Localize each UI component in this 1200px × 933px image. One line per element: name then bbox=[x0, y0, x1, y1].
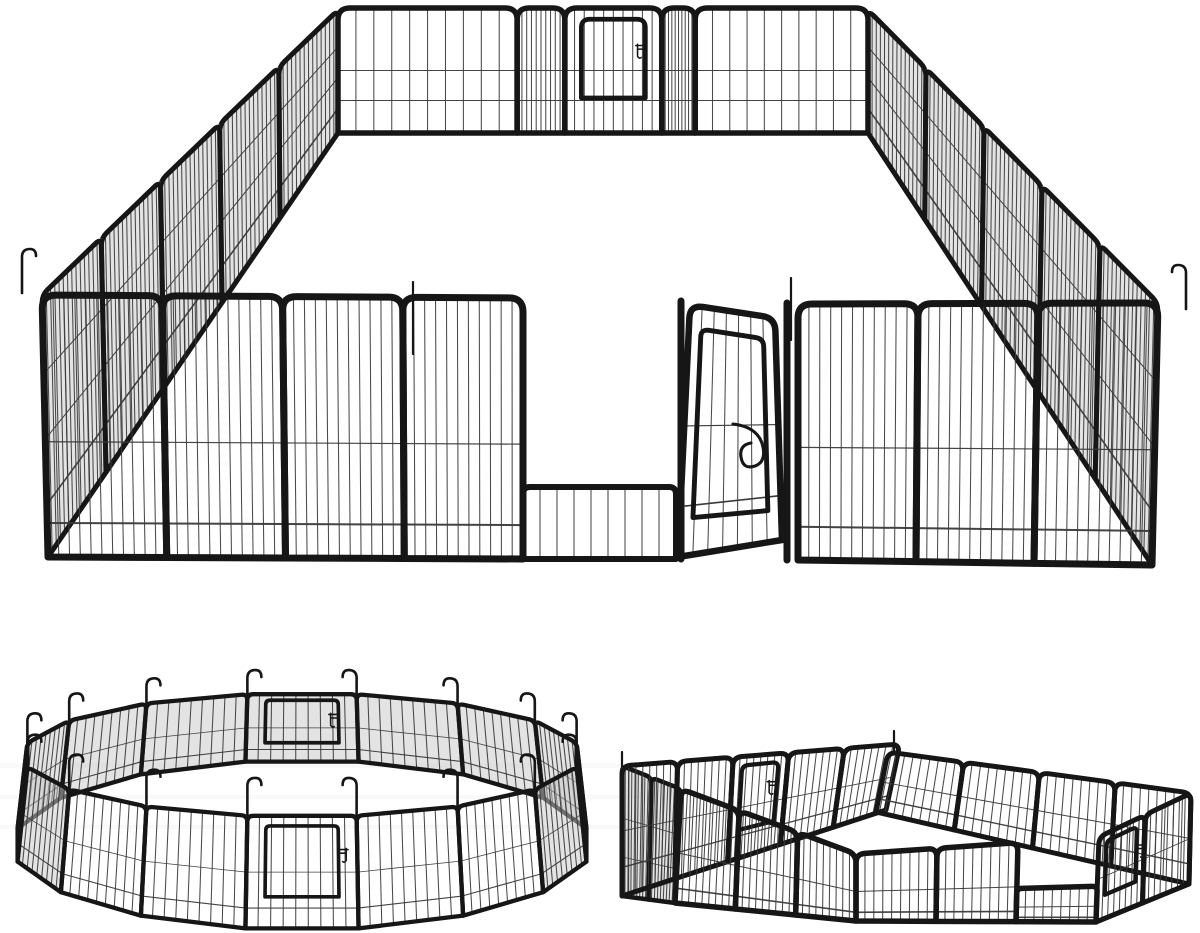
zigzag-pen-figure bbox=[622, 731, 1191, 922]
fence-panel bbox=[357, 694, 463, 774]
fence-panel bbox=[42, 238, 106, 557]
fence-panel bbox=[517, 8, 565, 133]
fence-panel bbox=[954, 763, 1038, 848]
product-photo-stage bbox=[0, 0, 1200, 933]
fence-panel bbox=[279, 10, 338, 218]
fence-panel bbox=[565, 8, 662, 133]
fence-panel bbox=[1016, 886, 1097, 922]
fence-panel bbox=[338, 8, 517, 133]
open-door-inner-frame bbox=[693, 330, 768, 517]
fence-panel bbox=[1096, 817, 1146, 922]
fence-panel bbox=[458, 791, 543, 916]
right-side-wall bbox=[868, 10, 1158, 565]
fence-panel bbox=[220, 67, 280, 303]
ground-anchor-hook-icon bbox=[22, 249, 36, 293]
fence-panel bbox=[160, 124, 222, 387]
back-wall bbox=[338, 8, 868, 133]
fence-panel bbox=[283, 297, 405, 559]
left-side-wall bbox=[42, 10, 338, 557]
fence-panel bbox=[403, 297, 523, 559]
playpen-product-image bbox=[0, 0, 1200, 933]
fence-panel bbox=[245, 694, 358, 761]
panel-door-frame bbox=[265, 826, 339, 897]
fence-panel bbox=[856, 849, 937, 921]
fence-panel bbox=[1095, 244, 1158, 565]
open-walkthrough-door bbox=[678, 307, 782, 557]
fence-panel bbox=[61, 791, 146, 916]
fence-panel bbox=[245, 816, 358, 929]
fence-panel bbox=[141, 694, 247, 774]
rectangular-pen-figure bbox=[22, 8, 1186, 565]
left-end-wall bbox=[622, 766, 681, 903]
fence-panel bbox=[982, 127, 1042, 392]
fence-panel bbox=[523, 487, 676, 559]
fence-panel bbox=[936, 843, 1018, 921]
fence-panel bbox=[662, 8, 695, 133]
fence-panel bbox=[1038, 186, 1100, 479]
circular-pen-figure bbox=[18, 670, 587, 928]
fence-panel bbox=[458, 703, 544, 797]
fence-panel bbox=[925, 69, 984, 306]
fence-panel bbox=[1033, 774, 1115, 866]
fence-panel bbox=[798, 304, 918, 562]
fence-panel bbox=[695, 8, 868, 133]
door-threshold bbox=[523, 487, 676, 559]
fence-panel bbox=[868, 10, 926, 219]
fence-panel bbox=[796, 835, 856, 921]
fence-panel bbox=[61, 703, 147, 797]
ground-anchor-hook-icon bbox=[1172, 265, 1186, 309]
fence-panel bbox=[1143, 795, 1191, 903]
